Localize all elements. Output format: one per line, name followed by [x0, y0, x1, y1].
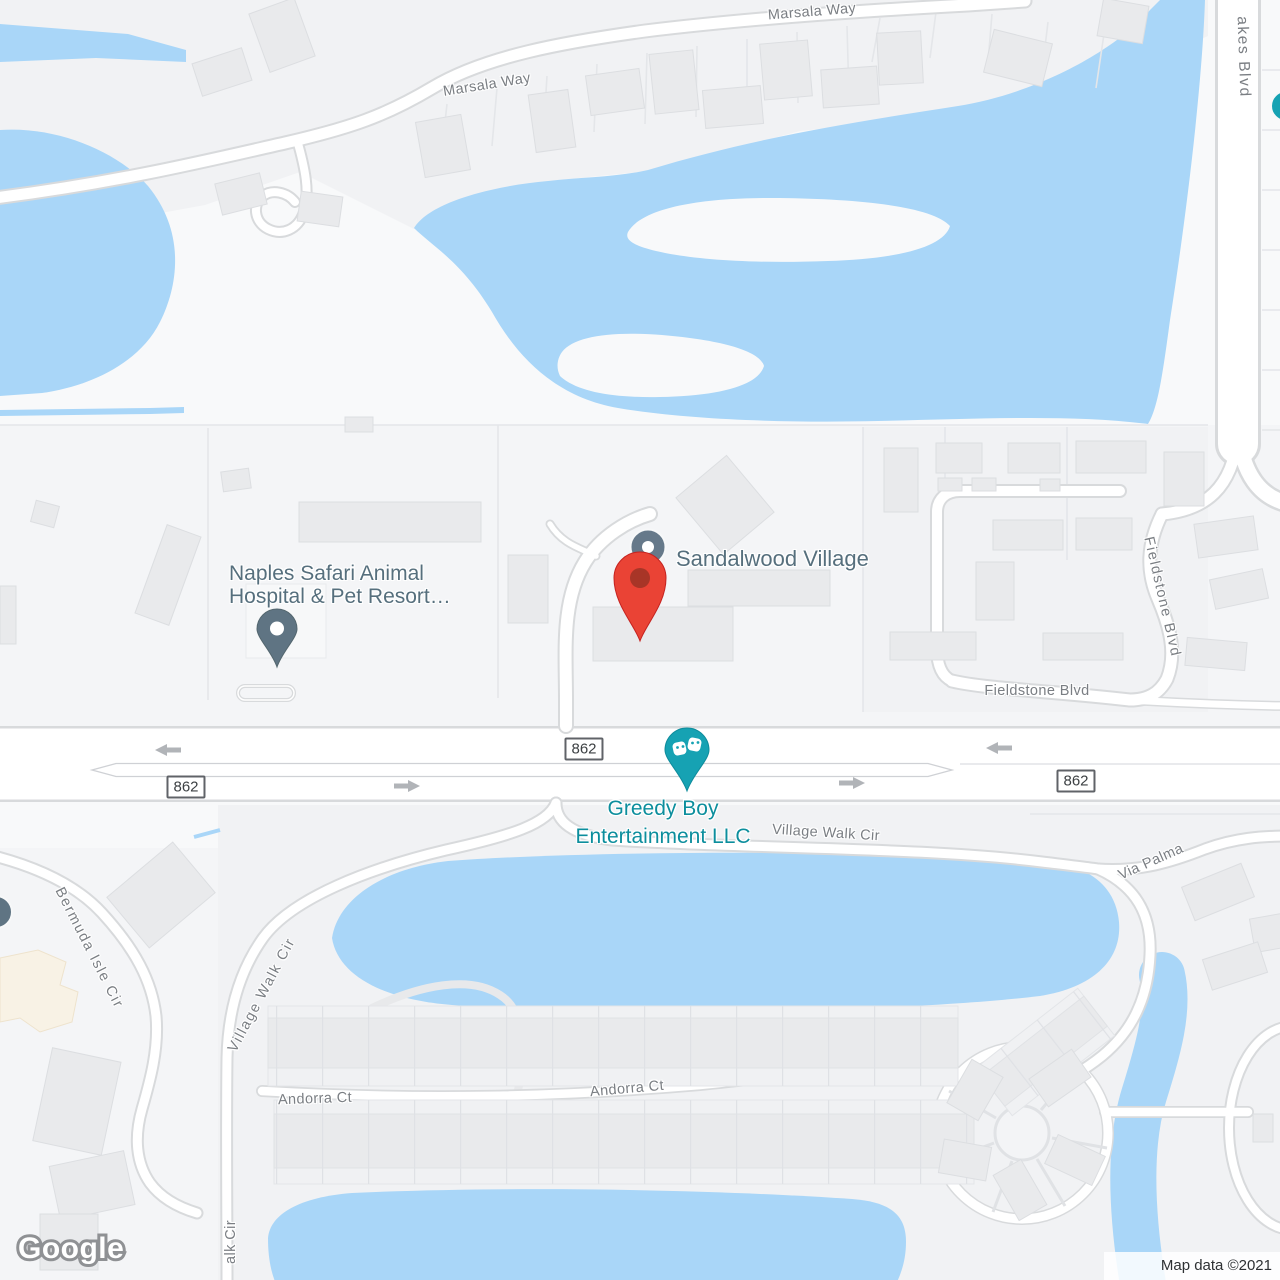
street-label-fieldstone-blvd: Fieldstone Blvd	[984, 683, 1089, 699]
street-label-andorra-ct-left: Andorra Ct	[278, 1090, 353, 1109]
google-watermark-fill: Google	[18, 1232, 124, 1266]
poi-label-greedy-boy-line1[interactable]: Greedy Boy	[608, 797, 719, 821]
poi-label-sandalwood-village[interactable]: Sandalwood Village	[676, 546, 869, 572]
street-label-lakes-blvd: akes Blvd	[1233, 16, 1254, 98]
route-shield-862-middle: 862	[564, 738, 603, 761]
buildings-commercial	[0, 950, 78, 1032]
google-watermark[interactable]: Google Google	[18, 1232, 158, 1272]
poi-label-naples-safari-line2[interactable]: Hospital & Pet Resort…	[229, 585, 451, 609]
lake-bottom	[268, 1189, 906, 1280]
highway-median	[92, 764, 952, 777]
street-label-walk-cir-partial: alk Cir	[223, 1220, 239, 1264]
route-shield-862-right: 862	[1056, 770, 1095, 793]
poi-label-naples-safari-line1[interactable]: Naples Safari Animal	[229, 562, 424, 586]
poi-label-greedy-boy-line2[interactable]: Entertainment LLC	[575, 825, 750, 849]
map-viewport[interactable]: Marsala Way Marsala Way akes Blvd Fields…	[0, 0, 1280, 1280]
map-attribution: Map data ©2021	[1104, 1252, 1280, 1280]
route-shield-862-left: 862	[166, 776, 205, 799]
